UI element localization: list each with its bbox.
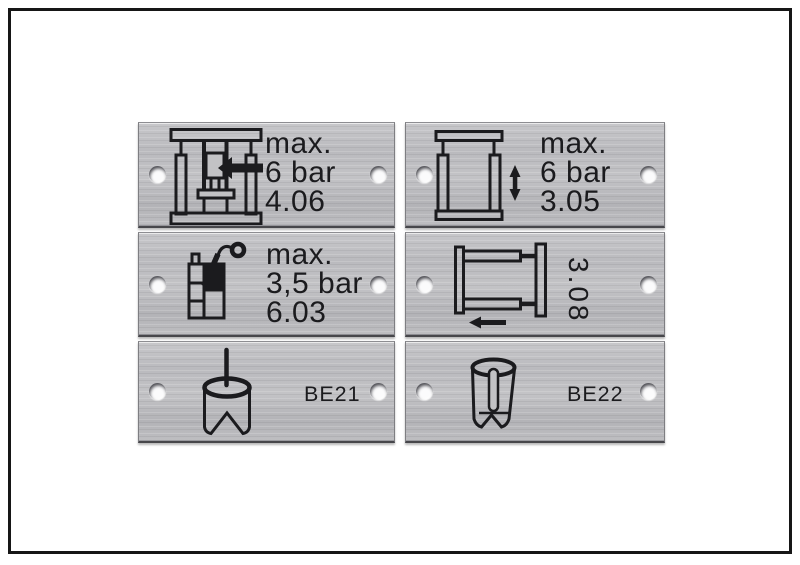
label-line-module: 6.03 — [266, 298, 363, 327]
nameplate-3-05: max. 6 bar 3.05 — [405, 122, 665, 228]
mounting-hole-icon — [640, 276, 657, 293]
mounting-hole-icon — [640, 383, 657, 400]
tool-code-label: BE21 — [304, 383, 361, 405]
mounting-hole-icon — [149, 276, 166, 293]
pressure-label: max. 6 bar 3.05 — [540, 129, 611, 216]
label-line-pressure: 6 bar — [265, 158, 336, 187]
mounting-hole-icon — [416, 383, 433, 400]
mounting-hole-icon — [416, 166, 433, 183]
horizontal-slide-frame-left-arrow-icon — [453, 242, 548, 330]
nameplate-4-06: max. 6 bar 4.06 — [138, 122, 395, 228]
tool-code-label: BE22 — [567, 383, 624, 405]
nameplate-3-08: 3.08 — [405, 232, 665, 337]
label-line-max: max. — [540, 129, 611, 158]
label-line-module: 4.06 — [265, 187, 336, 216]
mounting-hole-icon — [149, 166, 166, 183]
pressure-label: max. 6 bar 4.06 — [265, 129, 336, 216]
catalog-image: max. 6 bar 4.06 — [0, 0, 800, 565]
mounting-hole-icon — [640, 166, 657, 183]
nameplate-be22: BE22 — [405, 341, 665, 443]
notched-cylinder-punch-pin-top-icon — [201, 346, 253, 436]
pressure-label: max. 3,5 bar 6.03 — [266, 240, 363, 327]
cylinder-cutaway-inner-pin-icon — [469, 357, 518, 431]
adhesive-container-spray-gun-icon — [184, 239, 249, 324]
mounting-hole-icon — [370, 276, 387, 293]
label-line-pressure: 6 bar — [540, 158, 611, 187]
mounting-hole-icon — [416, 276, 433, 293]
vertical-press-side-feed-arrow-icon — [169, 128, 263, 225]
mounting-hole-icon — [370, 383, 387, 400]
mounting-hole-icon — [149, 383, 166, 400]
label-line-module: 3.05 — [540, 187, 611, 216]
module-number-label: 3.08 — [563, 257, 593, 317]
label-line-max: max. — [266, 240, 363, 269]
label-line-pressure: 3,5 bar — [266, 269, 363, 298]
nameplate-6-03: max. 3,5 bar 6.03 — [138, 232, 395, 337]
nameplate-grid: max. 6 bar 4.06 — [138, 122, 665, 443]
nameplate-be21: BE21 — [138, 341, 395, 443]
press-frame-vertical-stroke-arrow-icon — [434, 130, 524, 221]
mounting-hole-icon — [370, 166, 387, 183]
label-line-max: max. — [265, 129, 336, 158]
